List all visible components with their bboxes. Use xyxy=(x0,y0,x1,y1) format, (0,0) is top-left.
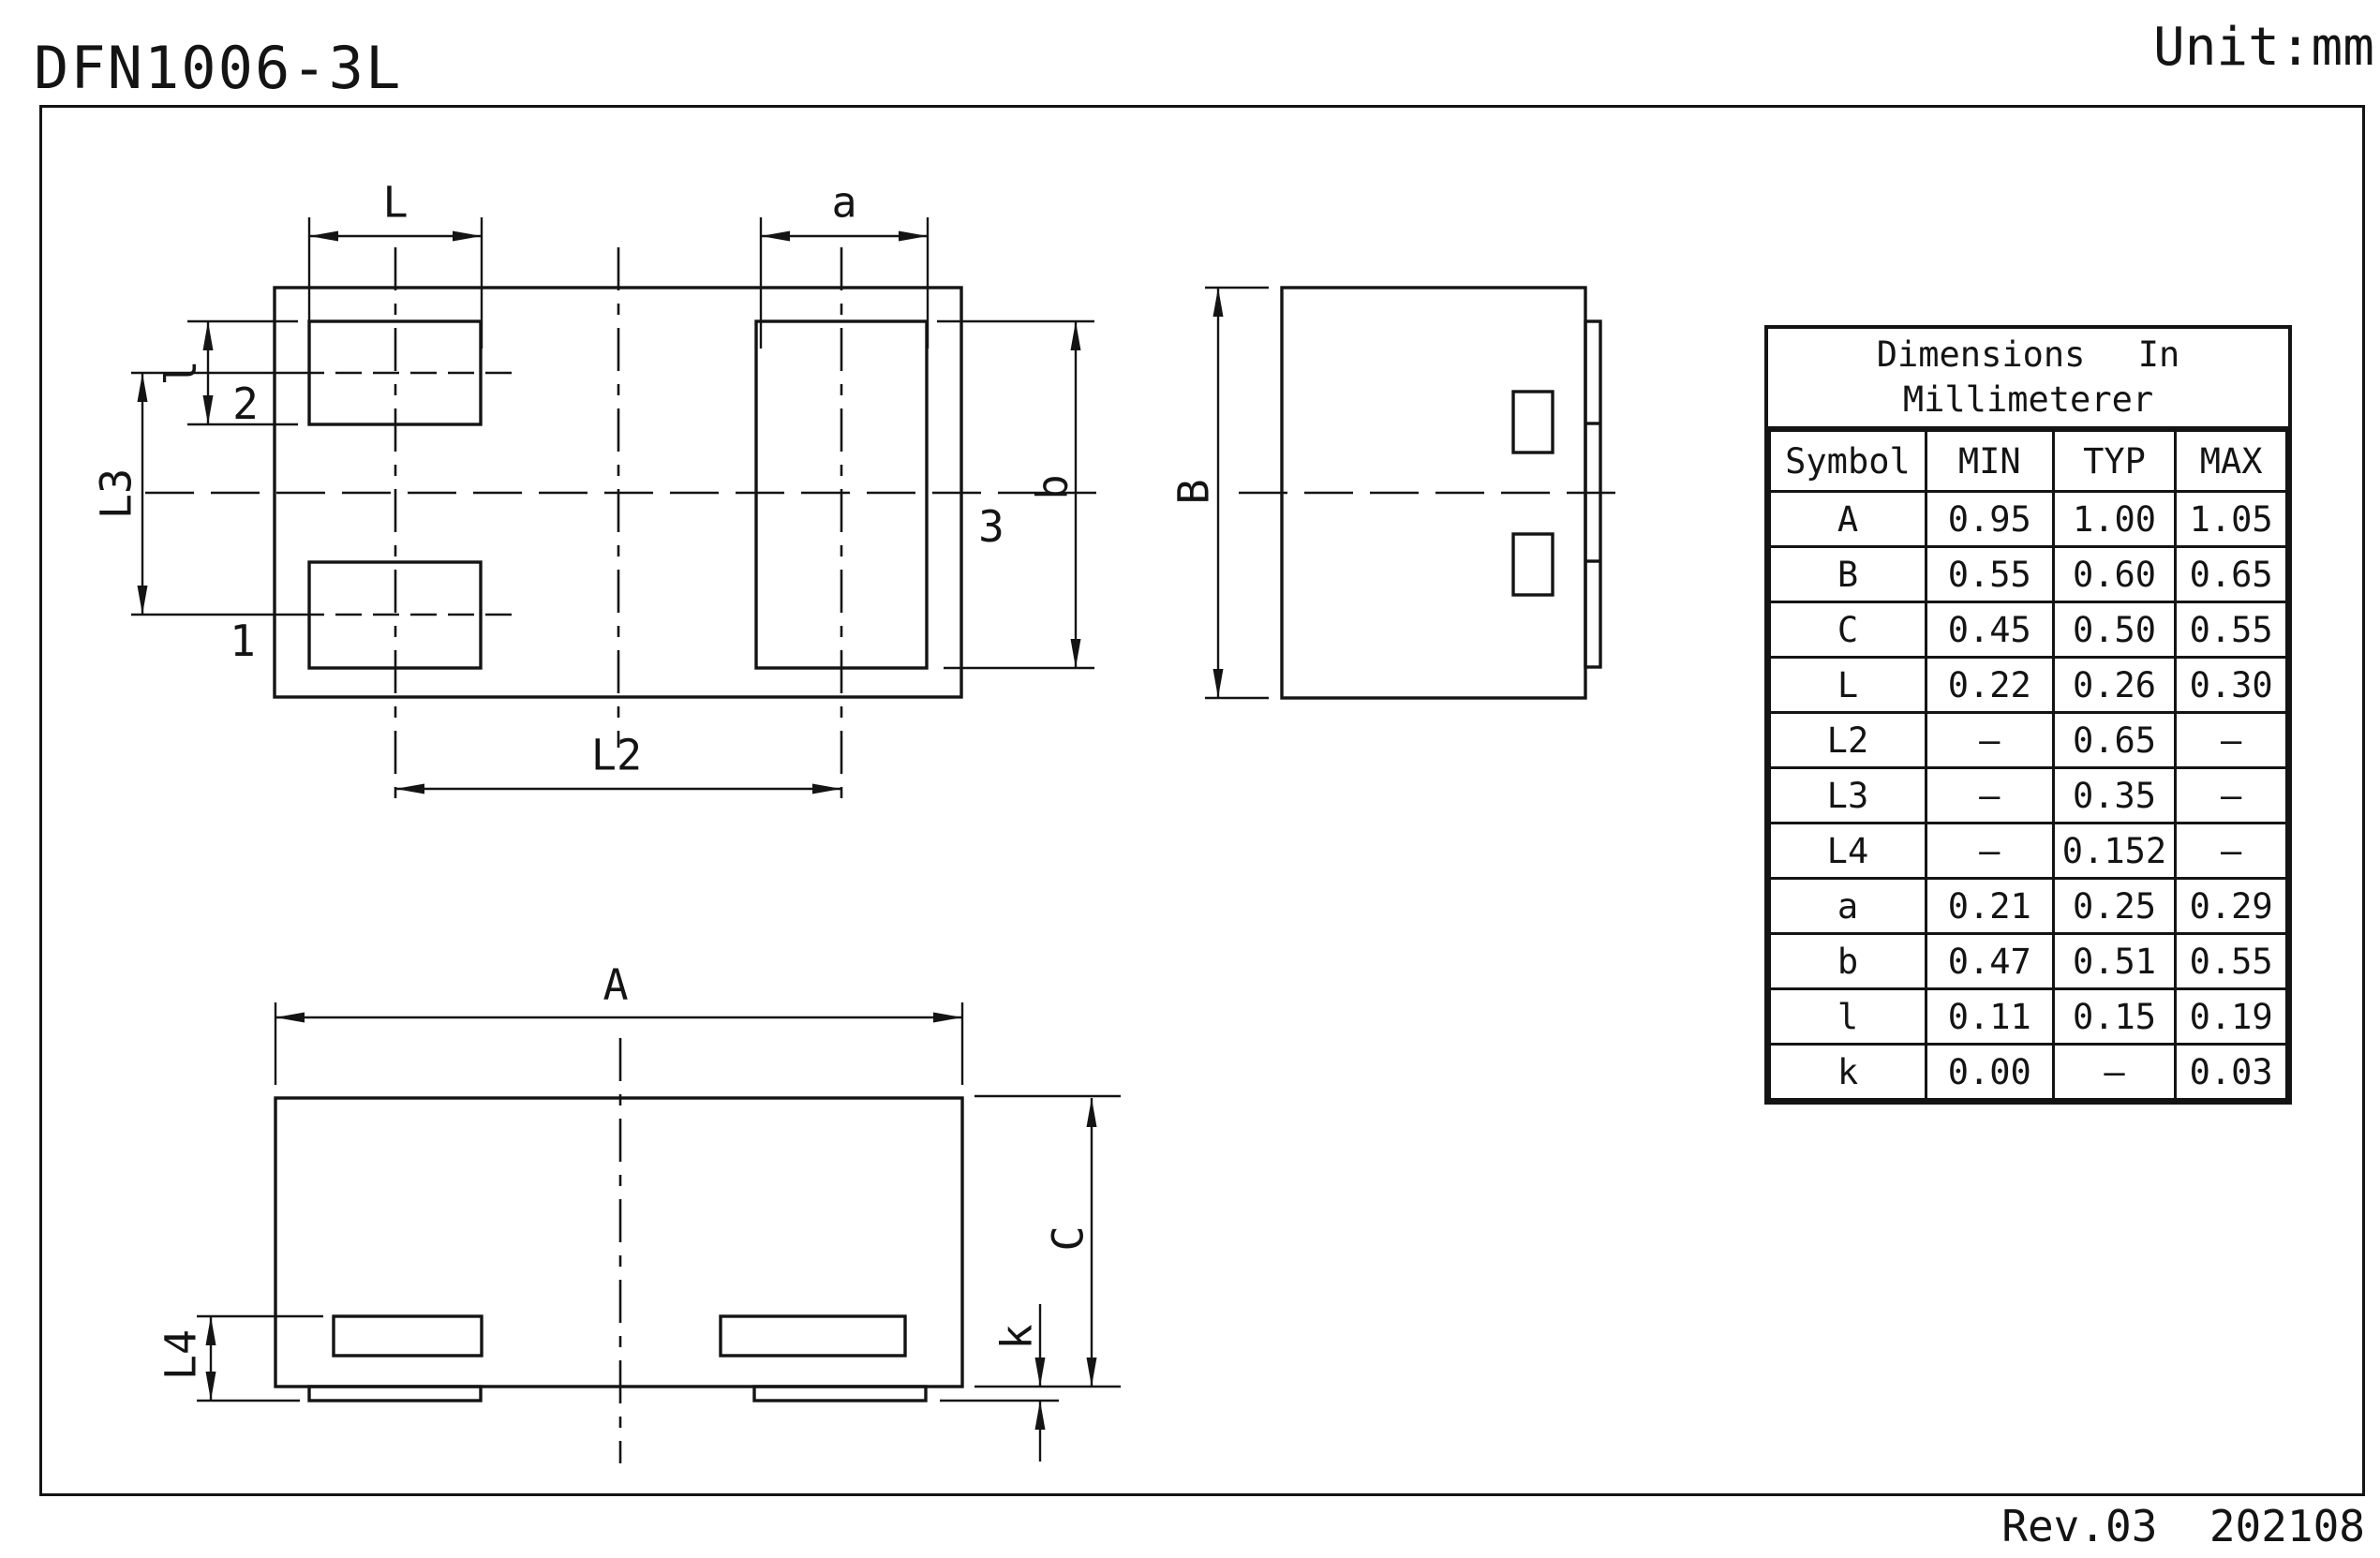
cell-l-symbol: l xyxy=(1770,989,1926,1045)
cell-l-max: 0.19 xyxy=(2176,989,2287,1045)
cell-C-min: 0.45 xyxy=(1926,602,2053,658)
table-row-l: l0.110.150.19 xyxy=(1770,989,2287,1045)
table-row-b: b0.470.510.55 xyxy=(1770,934,2287,989)
col-header-symbol: Symbol xyxy=(1770,431,1926,492)
cell-L3-min: – xyxy=(1926,768,2053,824)
cell-C-symbol: C xyxy=(1770,602,1926,658)
table-row-B: B0.550.600.65 xyxy=(1770,547,2287,602)
table-row-L: L0.220.260.30 xyxy=(1770,658,2287,713)
dimensions-table: Dimensions In Millimeterer Symbol MIN TY… xyxy=(1764,325,2292,1105)
cell-a-max: 0.29 xyxy=(2176,879,2287,934)
front-pad-right xyxy=(721,1316,905,1356)
front-body xyxy=(275,1098,962,1387)
cell-L4-max: – xyxy=(2176,824,2287,879)
cell-B-symbol: B xyxy=(1770,547,1926,602)
cell-L3-max: – xyxy=(2176,768,2287,824)
cell-A-typ: 1.00 xyxy=(2053,492,2176,547)
pin-label-2: 2 xyxy=(232,378,259,429)
side-view: B xyxy=(1169,288,1624,698)
dim-label-L2: L2 xyxy=(591,731,642,780)
bottom-view: A C L4 k xyxy=(156,960,1122,1464)
drawing-sheet: DFN1006-3L Unit:mm Rev.03 202108 xyxy=(0,0,2380,1558)
dim-label-L: L xyxy=(382,178,408,228)
col-header-typ: TYP xyxy=(2053,431,2176,492)
drawing-line: L a l L3 b L2 2 1 3 xyxy=(92,178,1078,780)
table-title: Dimensions In Millimeterer xyxy=(1768,329,2288,429)
cell-L2-typ: 0.65 xyxy=(2053,713,2176,768)
cell-L3-symbol: L3 xyxy=(1770,768,1926,824)
dim-label-A: A xyxy=(602,960,628,1010)
extension-lines xyxy=(197,1002,1121,1401)
col-header-min: MIN xyxy=(1926,431,2053,492)
cell-A-max: 1.05 xyxy=(2176,492,2287,547)
cell-b-min: 0.47 xyxy=(1926,934,2053,989)
cell-C-typ: 0.50 xyxy=(2053,602,2176,658)
col-header-max: MAX xyxy=(2176,431,2287,492)
dim-label-b: b xyxy=(1028,474,1078,499)
dim-label-C: C xyxy=(1044,1225,1093,1251)
cell-b-symbol: b xyxy=(1770,934,1926,989)
table-row-L3: L3–0.35– xyxy=(1770,768,2287,824)
dim-label-L4: L4 xyxy=(156,1329,206,1380)
cell-L2-min: – xyxy=(1926,713,2053,768)
pin-label-3: 3 xyxy=(978,501,1004,552)
front-foot-left xyxy=(309,1387,481,1401)
side-terminal-window-top xyxy=(1513,392,1553,453)
cell-L3-typ: 0.35 xyxy=(2053,768,2176,824)
cell-A-symbol: A xyxy=(1770,492,1926,547)
cell-L-min: 0.22 xyxy=(1926,658,2053,713)
cell-L4-symbol: L4 xyxy=(1770,824,1926,879)
table-row-C: C0.450.500.55 xyxy=(1770,602,2287,658)
cell-B-min: 0.55 xyxy=(1926,547,2053,602)
table-title-line1: Dimensions In xyxy=(1877,333,2180,378)
cell-k-max: 0.03 xyxy=(2176,1045,2287,1100)
dim-label-a: a xyxy=(831,178,856,228)
cell-l-typ: 0.15 xyxy=(2053,989,2176,1045)
table-header-row: Symbol MIN TYP MAX xyxy=(1770,431,2287,492)
table-row-a: a0.210.250.29 xyxy=(1770,879,2287,934)
cell-B-typ: 0.60 xyxy=(2053,547,2176,602)
cell-b-max: 0.55 xyxy=(2176,934,2287,989)
dimensions-grid: Symbol MIN TYP MAX A0.951.001.05B0.550.6… xyxy=(1768,429,2288,1101)
side-terminal-strip xyxy=(1585,321,1600,667)
cell-L4-min: – xyxy=(1926,824,2053,879)
dim-label-l: l xyxy=(156,360,206,385)
cell-C-max: 0.55 xyxy=(2176,602,2287,658)
cell-k-symbol: k xyxy=(1770,1045,1926,1100)
cell-a-symbol: a xyxy=(1770,879,1926,934)
centerlines xyxy=(145,247,1096,808)
cell-B-max: 0.65 xyxy=(2176,547,2287,602)
cell-L2-symbol: L2 xyxy=(1770,713,1926,768)
pin-label-1: 1 xyxy=(230,616,256,666)
cell-L-symbol: L xyxy=(1770,658,1926,713)
front-foot-right xyxy=(754,1387,926,1401)
table-row-k: k0.00–0.03 xyxy=(1770,1045,2287,1100)
cell-a-typ: 0.25 xyxy=(2053,879,2176,934)
table-title-line2: Millimeterer xyxy=(1903,378,2153,423)
table-row-L2: L2–0.65– xyxy=(1770,713,2287,768)
dimension-lines xyxy=(142,236,1076,789)
table-row-A: A0.951.001.05 xyxy=(1770,492,2287,547)
cell-L-max: 0.30 xyxy=(2176,658,2287,713)
cell-k-typ: – xyxy=(2053,1045,2176,1100)
table-row-L4: L4–0.152– xyxy=(1770,824,2287,879)
side-terminal-window-bottom xyxy=(1513,534,1553,595)
dim-label-B: B xyxy=(1169,479,1219,504)
cell-A-min: 0.95 xyxy=(1926,492,2053,547)
front-pad-left xyxy=(334,1316,482,1356)
cell-b-typ: 0.51 xyxy=(2053,934,2176,989)
top-view: L a l L3 b L2 2 1 3 xyxy=(92,178,1097,809)
dim-label-k: k xyxy=(992,1324,1042,1349)
cell-L4-typ: 0.152 xyxy=(2053,824,2176,879)
cell-L2-max: – xyxy=(2176,713,2287,768)
cell-k-min: 0.00 xyxy=(1926,1045,2053,1100)
cell-L-typ: 0.26 xyxy=(2053,658,2176,713)
dim-label-L3: L3 xyxy=(92,468,141,519)
cell-a-min: 0.21 xyxy=(1926,879,2053,934)
cell-l-min: 0.11 xyxy=(1926,989,2053,1045)
dimension-lines xyxy=(211,1017,1092,1462)
